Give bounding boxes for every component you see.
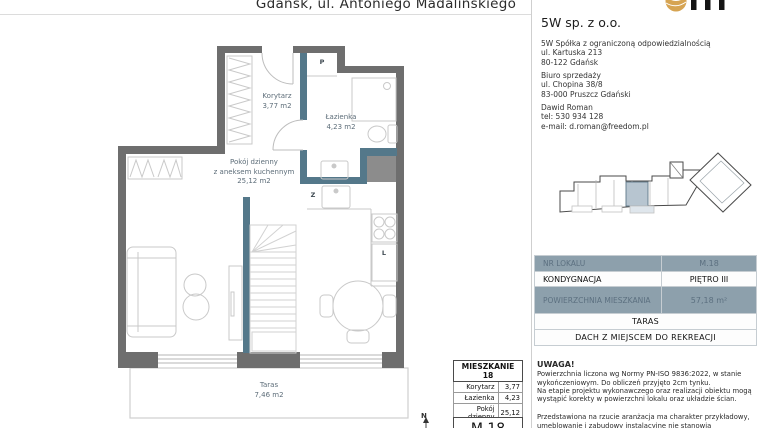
- freedom-logo: [666, 0, 725, 12]
- balconies: [572, 206, 654, 213]
- unit-details-table: NR LOKALU M.18 KONDYGNACJA PIĘTRO III PO…: [534, 255, 757, 346]
- tv: [231, 292, 234, 316]
- room-name: Korytarz: [454, 382, 499, 393]
- stairs: [250, 225, 296, 353]
- notes-block: UWAGA! Powierzchnia liczona wg Normy PN-…: [537, 361, 757, 428]
- installation-shaft: [367, 156, 396, 182]
- marker-l: L: [382, 249, 386, 257]
- toilet-bowl: [368, 126, 386, 142]
- sofa: [127, 247, 176, 337]
- shower-drain: [384, 83, 391, 90]
- unit-feature-row: DACH Z MIEJSCEM DO REKREACJI: [535, 330, 757, 346]
- unit-row-label: NR LOKALU: [535, 256, 662, 272]
- notes-paragraph: Na etapie projektu wykonawczego oraz rea…: [537, 387, 757, 404]
- label-lazienka: Łazienka 4,23 m2: [326, 113, 357, 132]
- bathroom-door: [273, 120, 303, 150]
- pouf-large: [183, 294, 209, 320]
- shower: [352, 78, 396, 121]
- north-label: N: [421, 412, 427, 420]
- unit-row-value: 57,18 m²: [662, 287, 757, 314]
- exterior-walls: [118, 46, 404, 368]
- label-korytarz: Korytarz 3,77 m2: [262, 92, 291, 111]
- unit-feature-row: TARAS: [535, 314, 757, 330]
- site-plan: [560, 153, 751, 213]
- highlighted-unit: [626, 182, 648, 206]
- marker-z: Z: [311, 191, 316, 199]
- dining-table: [333, 281, 383, 331]
- entrance-door: [262, 53, 293, 84]
- apartment-table-title: MIESZKANIE 18: [454, 361, 523, 382]
- company-legal-block: 5W Spółka z ograniczoną odpowiedzialnośc…: [541, 39, 711, 67]
- unit-code-box: M.18: [453, 417, 523, 428]
- chair-left: [320, 295, 333, 317]
- room-area: 3,77: [498, 382, 522, 393]
- sales-office-block: Biuro sprzedaży ul. Chopina 38/8 83-000 …: [541, 71, 631, 99]
- toilet-tank: [388, 125, 397, 143]
- unit-row-value: M.18: [662, 256, 757, 272]
- notes-paragraph: Powierzchnia liczona wg Normy PN-ISO 983…: [537, 370, 757, 387]
- company-name: 5W sp. z o.o.: [541, 15, 621, 30]
- chair-right: [383, 295, 396, 317]
- notes-heading: UWAGA!: [537, 361, 757, 369]
- unit-row-label: POWIERZCHNIA MIESZKANIA: [535, 287, 662, 314]
- brochure-page: Gdańsk, ul. Antoniego Madalińskiego: [0, 0, 760, 428]
- notes-paragraph: Przedstawiona na rzucie aranżacja ma cha…: [537, 413, 757, 428]
- chair-bottom: [347, 330, 369, 343]
- logo-bars: [691, 0, 725, 10]
- pouf-small: [184, 274, 206, 296]
- unit-row-label: KONDYGNACJA: [535, 272, 662, 287]
- kitchen-counter-edge: [307, 209, 396, 286]
- marker-p: P: [320, 58, 325, 66]
- room-area: 4,23: [498, 393, 522, 404]
- label-taras: Taras 7,46 m2: [254, 381, 283, 400]
- agent-contact-block: Dawid Roman tel: 530 934 128 e-mail: d.r…: [541, 103, 649, 131]
- unit-row-value: PIĘTRO III: [662, 272, 757, 287]
- room-name: Łazienka: [454, 393, 499, 404]
- label-pokoj-dzienny: Pokój dzienny z aneksem kuchennym 25,12 …: [214, 158, 295, 187]
